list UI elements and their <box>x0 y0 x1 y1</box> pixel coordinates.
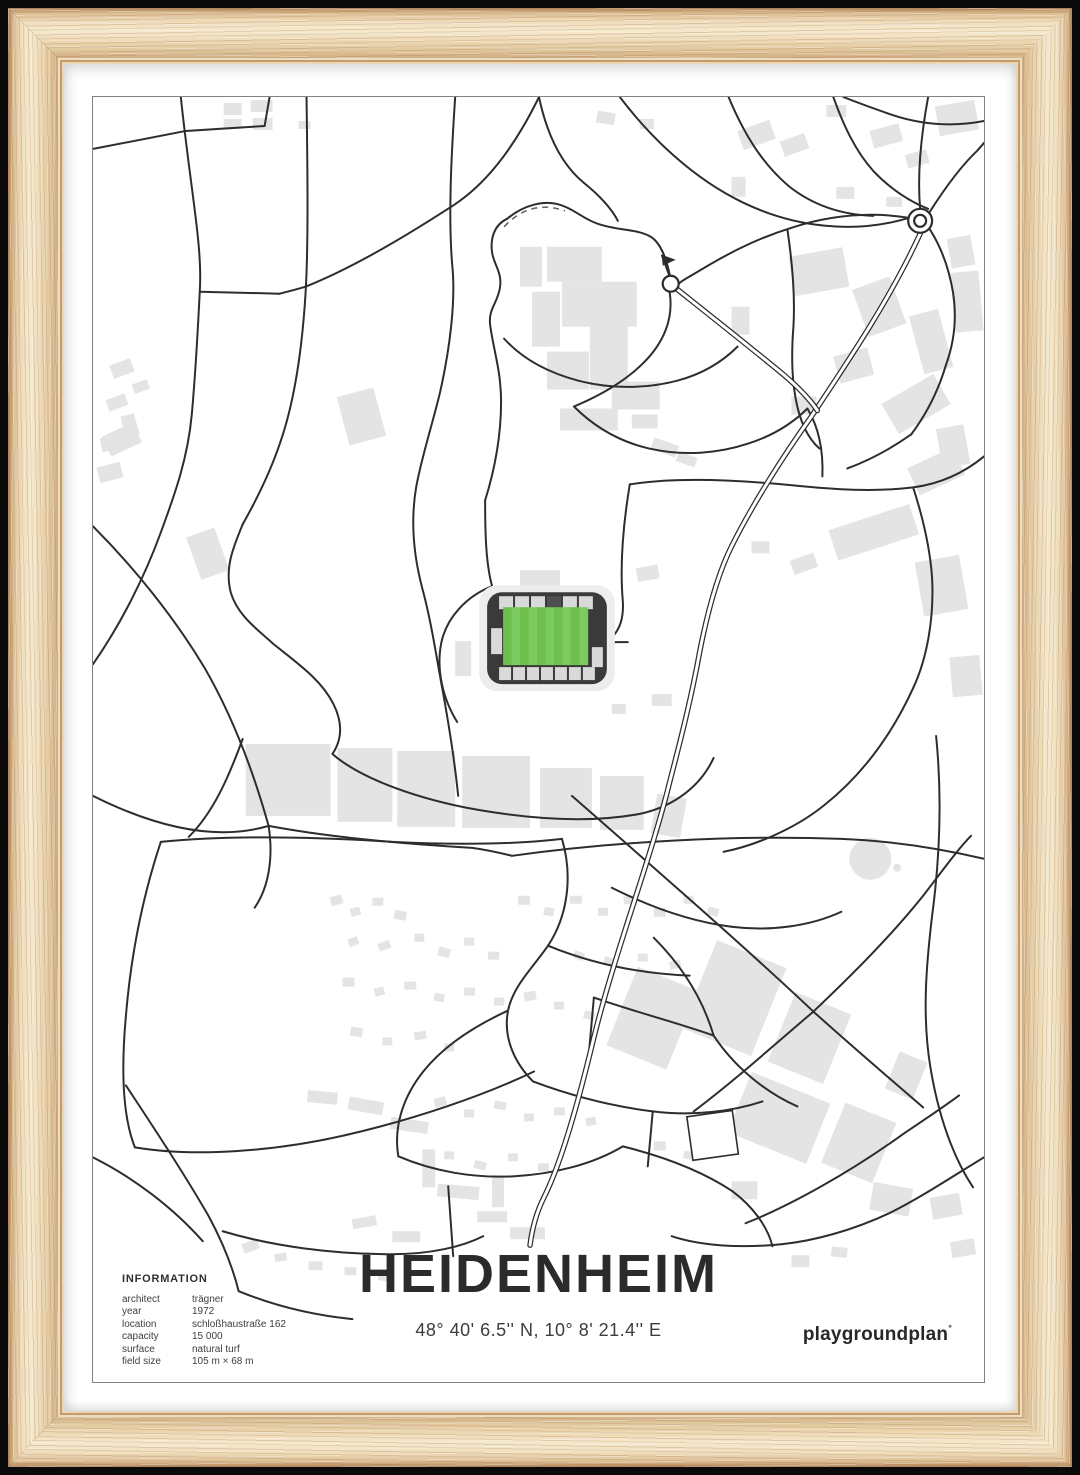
poster-title: HEIDENHEIM <box>93 1245 984 1303</box>
brand-mark: ° <box>948 1323 952 1333</box>
info-value: natural turf <box>192 1344 240 1355</box>
wood-frame-bottom <box>8 1409 1072 1467</box>
wood-frame-left <box>8 8 64 1467</box>
info-label: surface <box>122 1344 192 1356</box>
brand-text: playgroundplan <box>803 1324 948 1345</box>
wood-frame-right <box>1015 8 1072 1467</box>
stadium-map: INFORMATION architectträgneryear1972loca… <box>92 96 985 1383</box>
info-label: year <box>122 1306 192 1318</box>
info-row: year1972 <box>122 1306 372 1318</box>
brand-logo: playgroundplan° <box>803 1324 952 1346</box>
framed-poster: INFORMATION architectträgneryear1972loca… <box>0 0 1080 1475</box>
info-value: 105 m × 68 m <box>192 1356 253 1367</box>
info-label: field size <box>122 1356 192 1368</box>
wood-frame-top <box>8 8 1072 64</box>
info-value: 1972 <box>192 1306 214 1317</box>
info-row: surfacenatural turf <box>122 1344 372 1356</box>
info-row: field size105 m × 68 m <box>122 1356 372 1368</box>
map-svg <box>93 97 984 1382</box>
